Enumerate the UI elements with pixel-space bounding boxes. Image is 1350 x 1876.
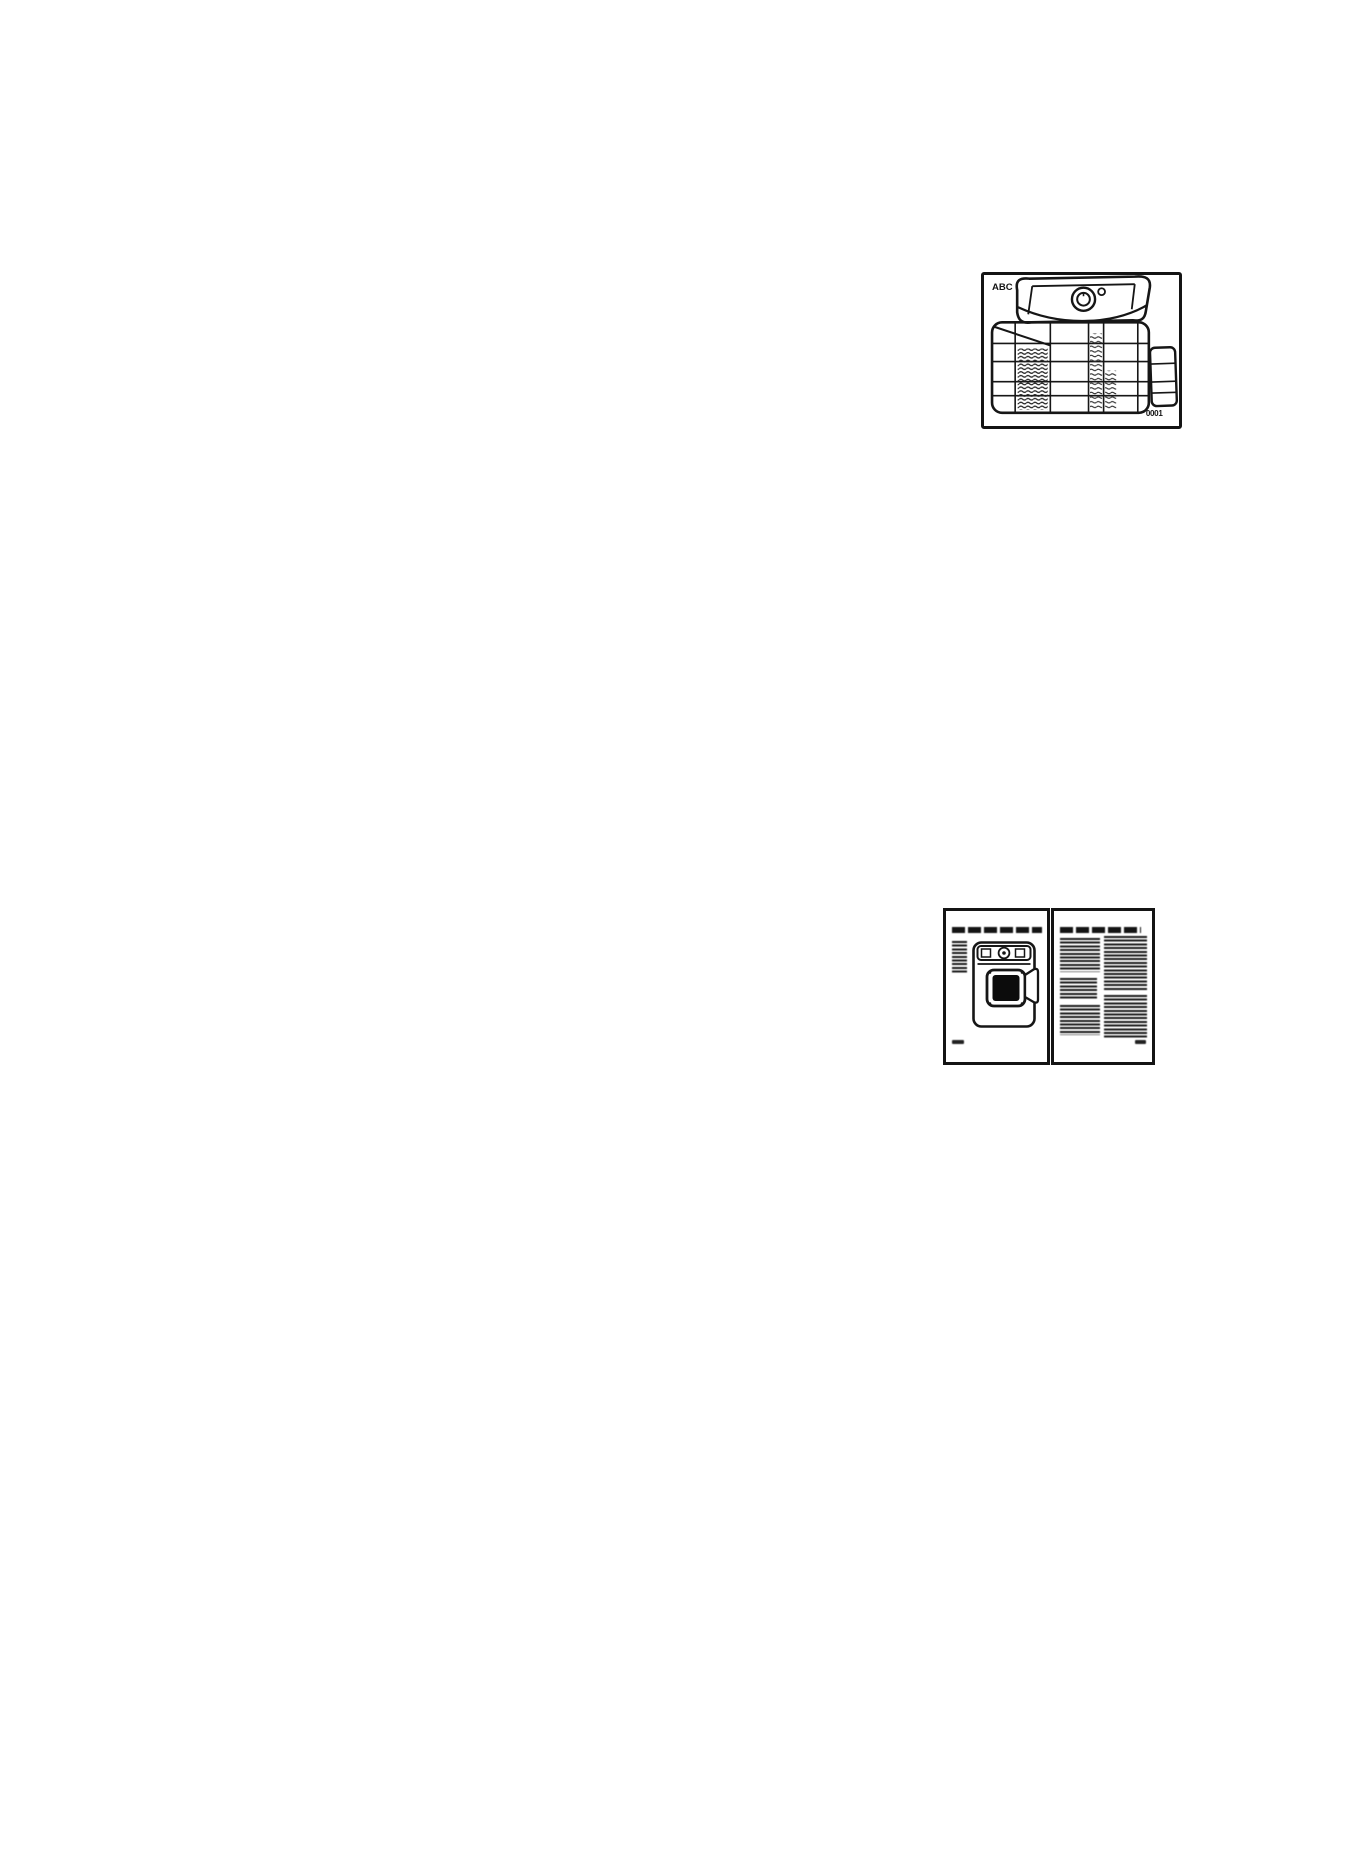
values-scribble	[1090, 333, 1102, 408]
paragraph-scribble	[1104, 936, 1147, 990]
caption-scribble	[952, 941, 967, 973]
diagonal-pointer-line	[993, 326, 1050, 345]
appliance-rating-label-figure: ABC	[981, 272, 1182, 429]
dryer-drawing	[972, 941, 1042, 1029]
dryer-illustration	[972, 941, 1042, 1029]
text-column-left	[1060, 938, 1100, 1035]
program-dial-icon	[1072, 288, 1095, 311]
right-page-footer-mark	[1135, 1040, 1146, 1044]
manual-right-page	[1051, 908, 1155, 1065]
control-panel-drawing	[1017, 276, 1150, 322]
brand-text: ABC	[992, 282, 1013, 293]
values-scribble-2	[1105, 371, 1116, 409]
indicator-light-icon	[1098, 288, 1105, 295]
open-door-flap	[1025, 969, 1038, 1003]
door-window	[993, 975, 1020, 1001]
panel-button-right	[1016, 949, 1025, 957]
left-page-footer-mark	[952, 1040, 964, 1044]
program-table	[992, 322, 1149, 412]
right-page-title-scribble	[1060, 927, 1141, 933]
panel-button-left	[982, 949, 991, 957]
paragraph-scribble	[1060, 938, 1100, 972]
paragraph-scribble	[1060, 978, 1097, 1000]
text-column-right	[1104, 936, 1147, 1039]
manual-left-page	[943, 908, 1050, 1065]
side-info-card	[1150, 347, 1177, 406]
paragraph-scribble	[1060, 1005, 1100, 1035]
paragraph-scribble	[1104, 995, 1147, 1039]
part-code-text: 0001	[1146, 409, 1163, 418]
left-page-title-scribble	[952, 927, 1042, 933]
manual-spread-figure	[943, 908, 1155, 1065]
document-page: ABC	[0, 0, 1350, 1876]
program-names-scribble	[1018, 348, 1048, 409]
rating-label-drawing: ABC	[984, 275, 1179, 426]
